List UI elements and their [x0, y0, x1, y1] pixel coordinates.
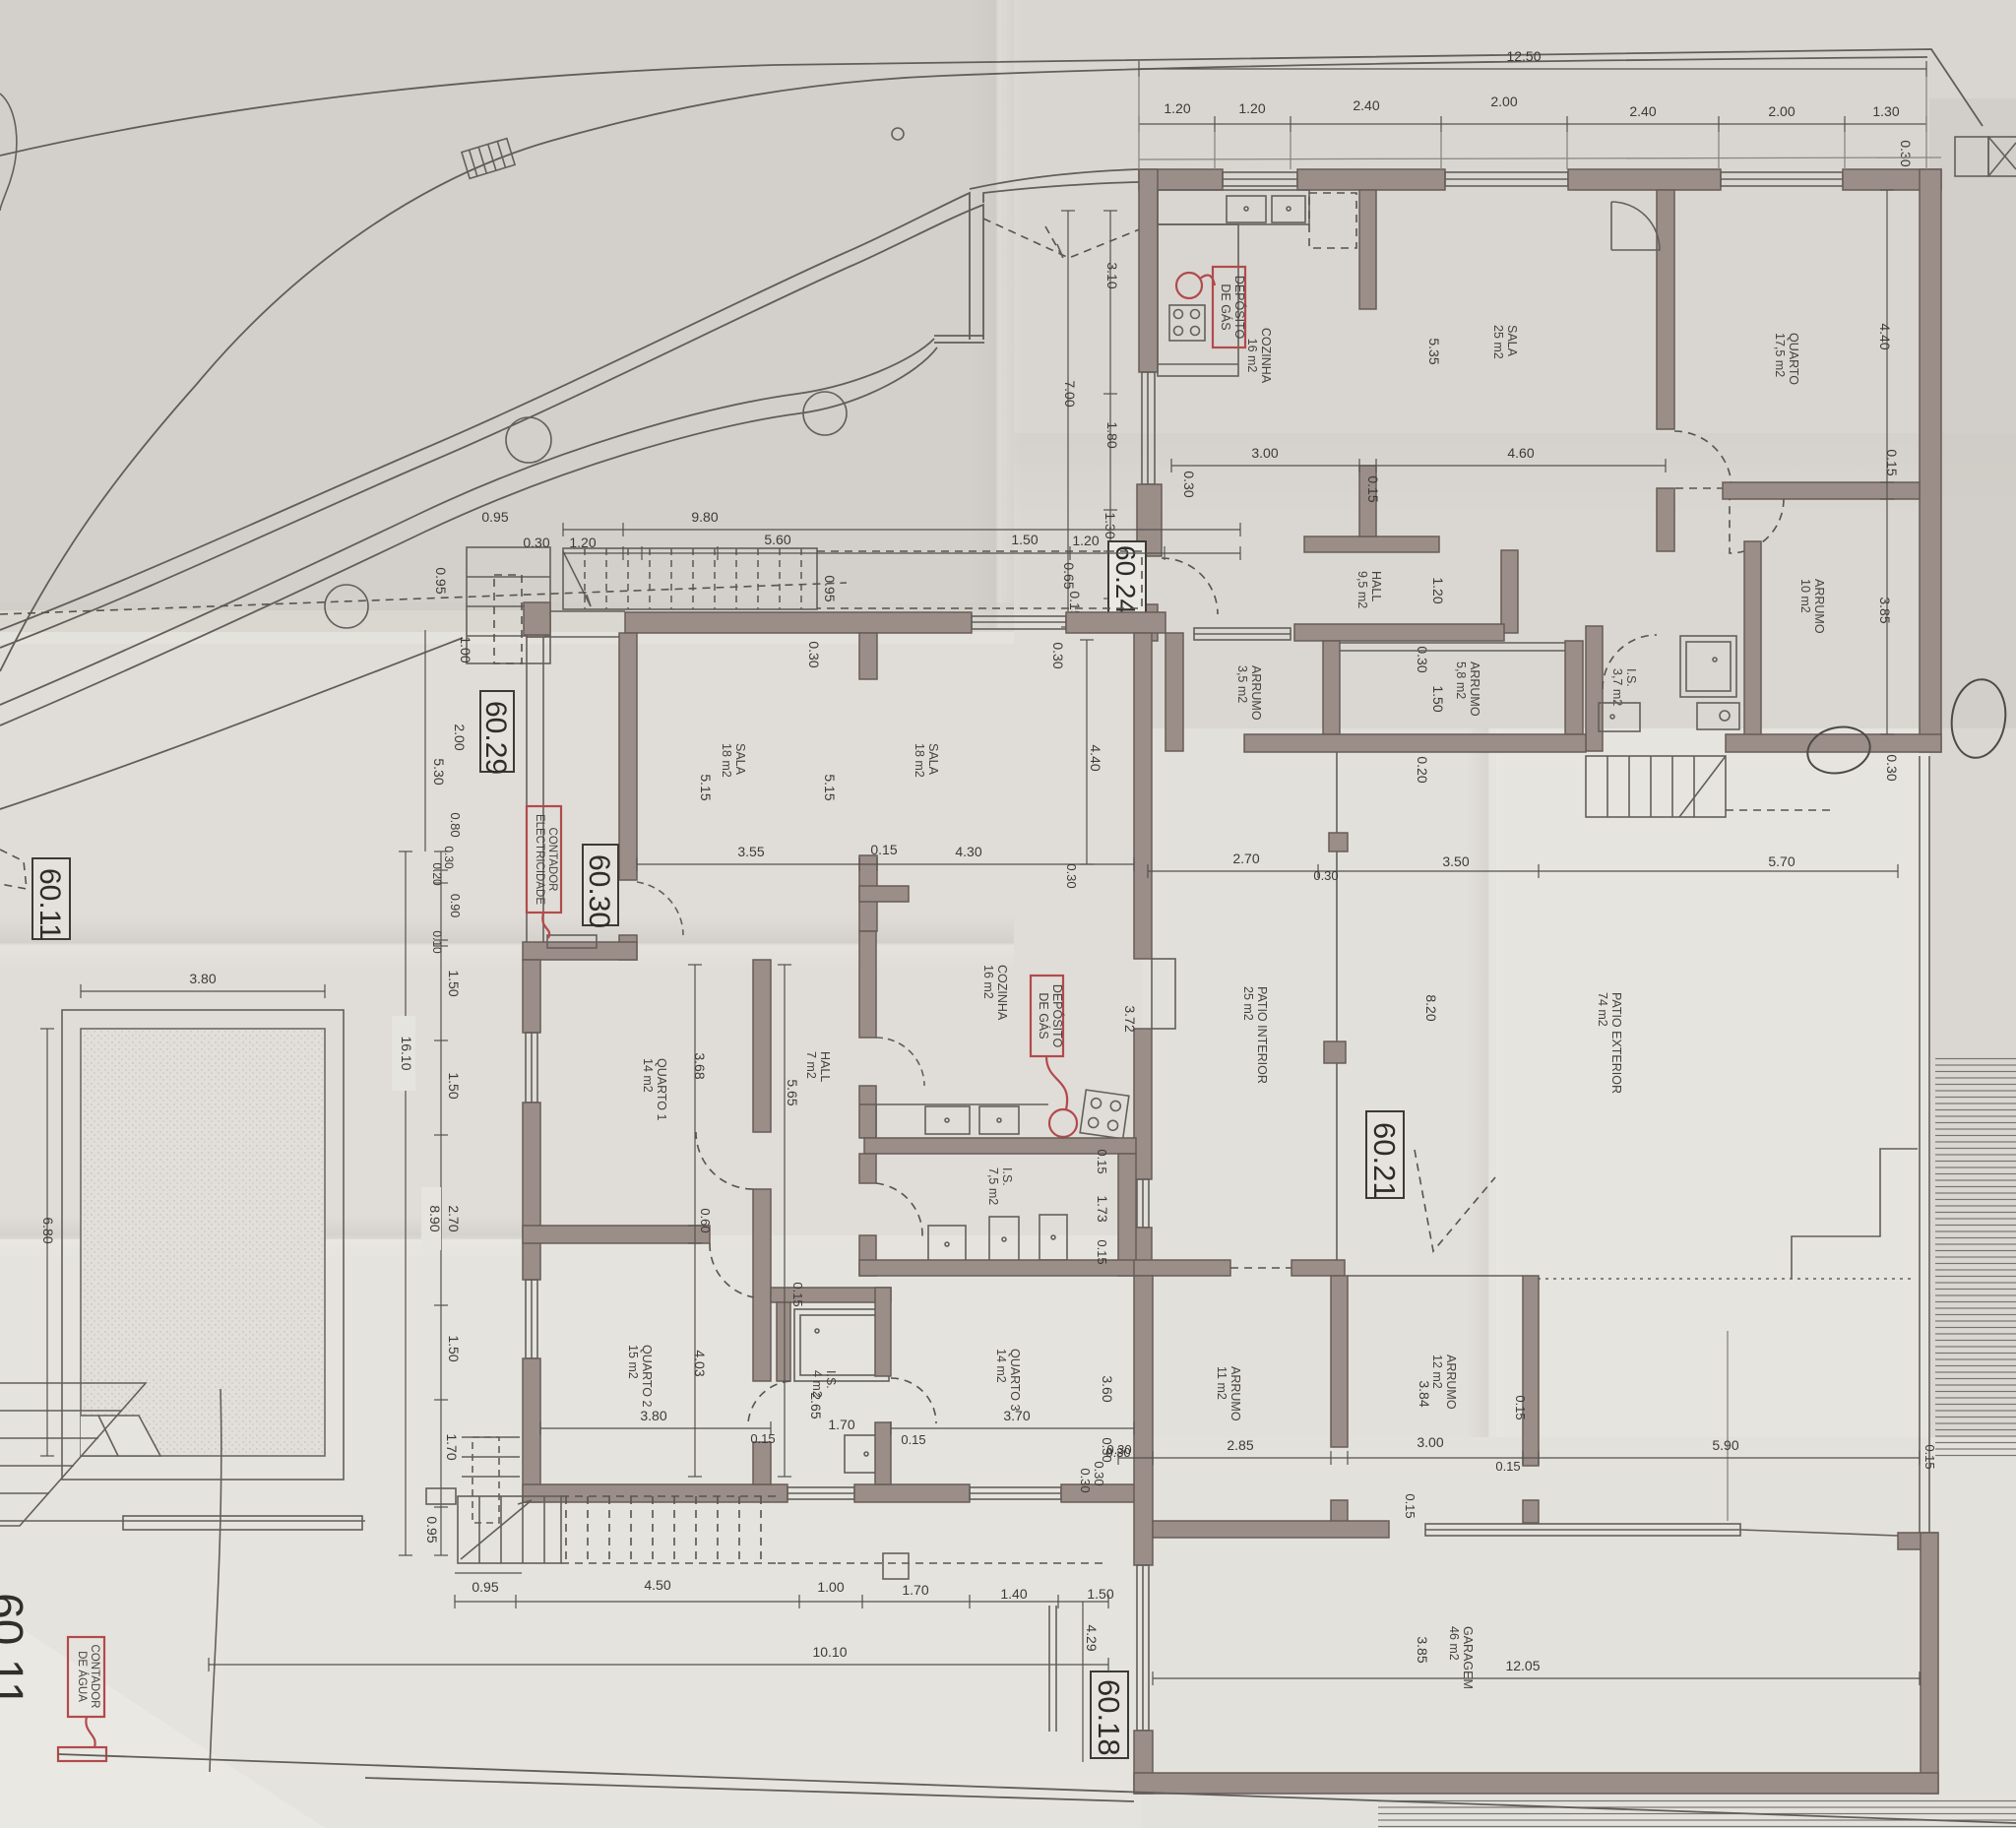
- svg-text:0.20: 0.20: [430, 862, 444, 886]
- svg-text:2.70: 2.70: [446, 1205, 462, 1231]
- svg-text:0.30: 0.30: [1064, 863, 1079, 888]
- svg-text:4.29: 4.29: [1084, 1624, 1100, 1651]
- svg-text:1.00: 1.00: [458, 636, 473, 662]
- svg-text:1.50: 1.50: [1087, 1586, 1113, 1602]
- svg-text:SALA25 m2: SALA25 m2: [1491, 325, 1519, 359]
- svg-text:60.21: 60.21: [1367, 1122, 1402, 1199]
- svg-text:3.85: 3.85: [1877, 597, 1893, 623]
- svg-text:0.30: 0.30: [1078, 1468, 1093, 1492]
- svg-text:3.72: 3.72: [1122, 1005, 1138, 1032]
- svg-text:5.70: 5.70: [1768, 853, 1795, 869]
- svg-text:3.10: 3.10: [1104, 262, 1120, 288]
- svg-text:5.15: 5.15: [698, 774, 714, 800]
- svg-text:8.20: 8.20: [1423, 994, 1439, 1021]
- svg-text:0.30: 0.30: [1884, 754, 1900, 781]
- svg-text:5.35: 5.35: [1426, 338, 1442, 364]
- svg-text:0.10: 0.10: [430, 930, 444, 954]
- svg-text:0.15: 0.15: [901, 1432, 925, 1447]
- svg-text:4.40: 4.40: [1088, 744, 1103, 771]
- svg-text:60 11: 60 11: [0, 1593, 31, 1708]
- svg-text:0.15: 0.15: [870, 842, 897, 857]
- svg-text:0.80: 0.80: [448, 812, 463, 837]
- svg-text:7.00: 7.00: [1062, 380, 1078, 407]
- svg-text:1.50: 1.50: [446, 1072, 462, 1099]
- svg-text:12.50: 12.50: [1506, 48, 1541, 64]
- svg-text:1.20: 1.20: [1072, 533, 1099, 548]
- svg-text:3.00: 3.00: [1417, 1434, 1443, 1450]
- svg-text:0.65: 0.65: [1061, 562, 1077, 589]
- svg-text:1.20: 1.20: [1238, 100, 1265, 116]
- svg-text:1.50: 1.50: [446, 1335, 462, 1361]
- svg-text:3.00: 3.00: [1251, 445, 1278, 461]
- svg-text:0.95: 0.95: [822, 575, 838, 601]
- svg-text:0.15: 0.15: [1513, 1395, 1528, 1419]
- svg-text:2.85: 2.85: [1227, 1437, 1253, 1453]
- svg-text:1.70: 1.70: [828, 1417, 854, 1432]
- svg-text:0.30: 0.30: [1181, 471, 1197, 497]
- svg-text:1.20: 1.20: [1430, 577, 1446, 603]
- svg-text:0.30: 0.30: [523, 535, 549, 550]
- svg-text:1.70: 1.70: [444, 1433, 460, 1460]
- svg-text:9.80: 9.80: [691, 509, 718, 525]
- svg-text:0.30: 0.30: [1313, 868, 1338, 883]
- svg-text:2.40: 2.40: [1629, 103, 1656, 119]
- svg-text:3.55: 3.55: [737, 844, 764, 859]
- svg-text:0.15: 0.15: [1495, 1459, 1520, 1474]
- svg-text:0.30: 0.30: [1106, 1442, 1131, 1457]
- svg-text:3.80: 3.80: [189, 971, 216, 986]
- svg-text:16.10: 16.10: [399, 1036, 414, 1070]
- svg-text:1.20: 1.20: [1164, 100, 1190, 116]
- svg-text:3.50: 3.50: [1442, 853, 1469, 869]
- svg-text:12.05: 12.05: [1505, 1658, 1540, 1673]
- svg-text:0.15: 0.15: [790, 1282, 805, 1306]
- svg-text:0.30: 0.30: [1050, 642, 1066, 668]
- svg-text:0.15: 0.15: [1403, 1493, 1417, 1518]
- svg-text:0.30: 0.30: [1092, 1461, 1106, 1485]
- svg-text:1.40: 1.40: [1000, 1586, 1027, 1602]
- svg-text:6.80: 6.80: [40, 1217, 56, 1243]
- svg-text:0.15: 0.15: [1884, 449, 1900, 475]
- svg-text:5.65: 5.65: [785, 1079, 800, 1105]
- svg-text:0.20: 0.20: [1415, 756, 1430, 783]
- svg-text:0.90: 0.90: [448, 894, 462, 917]
- svg-text:0.60: 0.60: [698, 1208, 713, 1232]
- svg-text:1.80: 1.80: [1104, 421, 1120, 448]
- svg-text:10.10: 10.10: [812, 1644, 847, 1660]
- svg-text:60.11: 60.11: [33, 868, 66, 940]
- svg-text:2.00: 2.00: [452, 724, 468, 750]
- svg-text:1.30: 1.30: [1102, 512, 1118, 538]
- svg-text:0.30: 0.30: [806, 641, 822, 667]
- svg-text:1.20: 1.20: [569, 535, 596, 550]
- svg-text:3.68: 3.68: [692, 1052, 708, 1079]
- svg-text:5.15: 5.15: [822, 774, 838, 800]
- svg-text:1.73: 1.73: [1095, 1195, 1110, 1222]
- svg-text:2.00: 2.00: [1490, 94, 1517, 109]
- svg-text:5.60: 5.60: [764, 532, 790, 547]
- svg-text:3.60: 3.60: [1100, 1375, 1115, 1402]
- svg-text:DEPÓSITODE GÁS: DEPÓSITODE GÁS: [1219, 276, 1247, 340]
- svg-text:2.70: 2.70: [1232, 851, 1259, 866]
- svg-text:3.84: 3.84: [1417, 1380, 1432, 1407]
- svg-text:0.95: 0.95: [472, 1579, 498, 1595]
- svg-text:60.18: 60.18: [1092, 1679, 1126, 1756]
- svg-text:5.30: 5.30: [431, 758, 447, 785]
- svg-text:DEPÓSITODE GÁS: DEPÓSITODE GÁS: [1037, 984, 1065, 1048]
- svg-text:60.29: 60.29: [479, 701, 512, 775]
- svg-text:0.15: 0.15: [1095, 1239, 1109, 1264]
- svg-text:CONTADORELECTRICIDADE: CONTADORELECTRICIDADE: [534, 814, 558, 905]
- svg-text:1.50: 1.50: [1430, 685, 1446, 712]
- svg-text:5.90: 5.90: [1712, 1437, 1738, 1453]
- svg-text:4.50: 4.50: [644, 1577, 670, 1593]
- svg-text:60.24: 60.24: [1110, 545, 1141, 614]
- svg-text:2.40: 2.40: [1353, 97, 1379, 113]
- svg-text:0.95: 0.95: [424, 1516, 440, 1543]
- svg-text:1.50: 1.50: [1011, 532, 1038, 547]
- svg-text:SALA18 m2: SALA18 m2: [720, 743, 747, 778]
- svg-text:1.00: 1.00: [817, 1579, 844, 1595]
- svg-text:3.70: 3.70: [1003, 1408, 1030, 1423]
- svg-text:1.70: 1.70: [902, 1582, 928, 1598]
- svg-text:4.40: 4.40: [1877, 323, 1893, 349]
- svg-text:0.95: 0.95: [481, 509, 508, 525]
- svg-text:0.30: 0.30: [1898, 140, 1914, 166]
- svg-text:0.15: 0.15: [1095, 1149, 1109, 1173]
- svg-text:1.30: 1.30: [1872, 103, 1899, 119]
- svg-text:60.30: 60.30: [583, 854, 615, 928]
- svg-text:1.50: 1.50: [446, 970, 462, 996]
- svg-text:0.95: 0.95: [433, 567, 449, 594]
- svg-text:4.03: 4.03: [692, 1350, 708, 1376]
- svg-text:4.60: 4.60: [1507, 445, 1534, 461]
- svg-text:2.00: 2.00: [1768, 103, 1795, 119]
- svg-text:3.85: 3.85: [1415, 1636, 1430, 1663]
- svg-text:4.30: 4.30: [955, 844, 981, 859]
- svg-text:CONTADORDE ÁGUA: CONTADORDE ÁGUA: [76, 1645, 100, 1709]
- svg-text:8.90: 8.90: [427, 1205, 443, 1231]
- svg-text:0.15: 0.15: [1365, 475, 1381, 502]
- svg-text:2.65: 2.65: [808, 1392, 824, 1418]
- svg-text:SALA18 m2: SALA18 m2: [913, 743, 940, 778]
- svg-text:0.15: 0.15: [1922, 1444, 1937, 1469]
- svg-text:0.15: 0.15: [750, 1431, 775, 1446]
- svg-text:3.80: 3.80: [640, 1408, 666, 1423]
- svg-text:HALL7 m2: HALL7 m2: [804, 1051, 832, 1082]
